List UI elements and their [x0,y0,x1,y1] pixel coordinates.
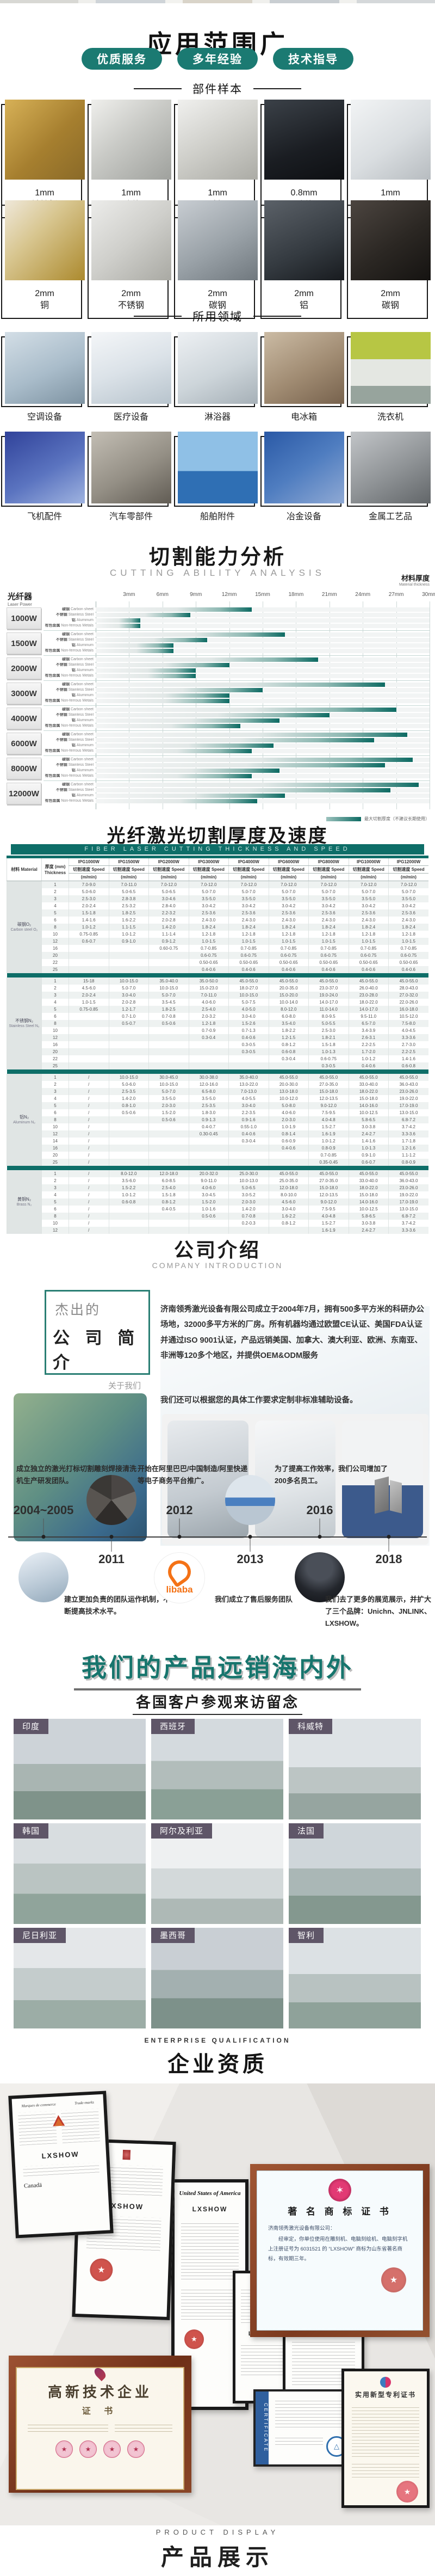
speed-cell: 0.7-0.8 [149,1013,189,1020]
thickness-cell: 6 [42,1109,69,1116]
speed-cell: 1.0-1.5 [69,999,109,1006]
speed-cell: 22.0-26.0 [389,999,429,1006]
speed-cell: 1.2-1.8 [189,1020,229,1027]
thickness-cell: 1 [42,1170,69,1177]
speed-cell: 5.0-6.5 [229,1184,269,1191]
badge-row: 优质服务多年经验技术指导 [0,48,435,70]
speed-table-row: 160.60-0.750.7-0.850.7-0.850.7-0.850.7-0… [7,945,429,952]
speed-cell: 1.2-1.8 [389,931,429,938]
company-timeline: 成立独立的激光打标切割雕刻焊接清洗机生产研发团队。2004~2005建立更加负责… [0,1448,435,1660]
speed-cell: 1.0-1.3 [349,1145,389,1152]
bar-material-label: 碳钢 Carbon sheet [42,733,94,737]
speed-cell: 2.2-2.5 [389,1048,429,1055]
speed-cell: 2.4-3.0 [269,917,309,924]
speed-cell: 7.5-9.5 [309,1109,349,1116]
speed-cell: 23.0-26.0 [389,1184,429,1191]
bar-fill [96,688,263,692]
speed-cell: 1.6-1.9 [309,1227,349,1234]
speed-cell [149,1027,189,1034]
speed-cell: 19.0-24.0 [309,992,349,999]
sample-thickness: 1mm [178,187,258,199]
speed-cell: 10.0-15.0 [109,977,149,985]
pink-seal: ★ [55,2440,73,2458]
speed-cell [109,1159,149,1166]
thickness-cell: 1 [42,881,69,889]
speed-cell: 1.8-2.4 [309,924,349,931]
speed-cell: 27.0-32.0 [389,992,429,999]
speed-table-row: 32.0-2.43.0-4.05.0-7.07.0-11.010.0-15.01… [7,992,429,999]
speed-table-row: 51.5-1.81.8-2.52.2-3.22.5-3.62.5-3.62.5-… [7,909,429,917]
speed-cell: 2.5-3.6 [349,909,389,917]
speed-cell: 1.5-2.7 [309,1220,349,1227]
speed-cell: 45.0-55.0 [229,977,269,985]
trademark-association-logo: ✶ [328,2179,351,2202]
speed-cell: 0.6-0.7 [69,938,109,945]
sample-item: 2mm碳钢 [351,200,431,312]
timeline-axis [8,1536,427,1538]
table-header-power: IPG1000W [69,857,109,866]
table-header-unit: (m/min) [269,874,309,881]
bar-material-label: 不锈钢 Stainless Steel [42,738,94,742]
speed-cell: 2.0-2.4 [69,902,109,909]
speed-cell: 0.8-0.9 [389,1159,429,1166]
timeline-photo [18,1552,69,1602]
speed-cell: 35.0-50.0 [189,977,229,985]
speed-cell: 1.0-1.2 [69,924,109,931]
speed-cell: 9.0-11.0 [189,1177,229,1184]
speed-table-row: 50.75-0.851.2-1.71.8-2.52.5-4.04.0-5.08.… [7,1006,429,1013]
speed-cell: 4.0-6.0 [269,1109,309,1116]
speed-cell [269,1062,309,1069]
speed-cell: 15.0-23.0 [189,985,229,992]
cert-text-lines [241,2343,289,2375]
speed-cell: / [69,1138,109,1145]
speed-cell: 3.0-4.0 [229,1102,269,1109]
speed-table-row: 220.50-0.650.50-0.650.50-0.650.50-0.650.… [7,959,429,966]
thickness-cell: 25 [42,1159,69,1166]
cert-text-lines [275,2435,323,2447]
profile-box-line2: 公 司 简 介 [53,1324,148,1373]
famous-cert-body1: 济南领秀激光设备有限公司： [268,2224,412,2234]
speed-cell: 0.5-0.6 [189,1213,229,1220]
table-header-power: IPG8000W [309,857,349,866]
laser-power-label: 2000W [7,657,41,679]
sample-item: 2mm铝 [264,200,344,312]
speed-cell: 6.0-8.5 [149,1177,189,1184]
speed-cell [189,1220,229,1227]
speed-cell: 4.0-6.0 [189,999,229,1006]
pink-seal: ★ [79,2440,97,2458]
speed-cell: 1.5-2.0 [149,1109,189,1116]
speed-cell: 1.7-2.0 [349,1048,389,1055]
speed-table-row: 24.5-6.05.0-7.010.0-15.015.0-23.018.0-27… [7,985,429,992]
speed-cell: 0.4-0.5 [149,1206,189,1213]
speed-cell: 3.0-4.2 [189,902,229,909]
speed-cell [109,1048,149,1055]
speed-cell: 2.2-2.5 [349,1041,389,1048]
bar-material-label: 有色金属 Non-ferrous Metals [42,674,94,678]
field-photo [178,332,258,404]
speed-table-row: 200.3-0.50.6-0.81.0-1.31.7-2.02.2-2.5 [7,1048,429,1055]
thickness-cell: 4 [42,1191,69,1198]
speed-cell: 0.55-1.0 [229,1123,269,1130]
speed-cell: / [69,1198,109,1206]
bar-material-label: 不锈钢 Stainless Steel [42,788,94,792]
speed-cell: 1.6-2.2 [109,917,149,924]
laser-power-label: 8000W [7,758,41,779]
speed-cell: 0.6-0.7 [349,1159,389,1166]
speed-cell [69,1027,109,1034]
speed-cell: / [69,1109,109,1116]
speed-cell: 0.2-0.3 [229,1220,269,1227]
speed-cell: 18.0-22.0 [349,999,389,1006]
speed-table-row: 200.6-0.750.6-0.750.6-0.750.6-0.750.6-0.… [7,952,429,959]
speed-cell: 3.5-5.0 [349,895,389,902]
speed-cell: 0.6-0.75 [189,952,229,959]
bar-material-label: 碳钢 Carbon sheet [42,607,94,612]
speed-cell: 0.6-0.8 [269,1048,309,1055]
speed-cell: / [69,1159,109,1166]
badge: 多年经验 [177,48,258,70]
bar-fill [96,794,285,798]
field-caption: 洗衣机 [351,411,431,423]
axis-tick-label: 30mm [422,592,435,598]
sample-thickness: 2mm [5,288,85,300]
thickness-cell: 14 [42,1138,69,1145]
bar-material-label: 铝 Aluminum [42,668,94,673]
speed-cell: 2.5-3.0 [309,1027,349,1034]
speed-cell: 15.0-18.0 [349,1191,389,1198]
speed-cell: 5.0-6.0 [69,888,109,895]
hightech-enterprise-certificate: 高新技术企业 证 书 ★★★★ [9,2356,191,2493]
speed-cell: 3.5-5.0 [389,895,429,902]
thickness-cell: 4 [42,1095,69,1102]
speed-cell: 1.4-1.6 [349,1138,389,1145]
speed-cell: 10.0-15.0 [149,1081,189,1088]
speed-cell [109,1145,149,1152]
laser-power-label: 12000W [7,783,41,804]
speed-cell [189,1227,229,1234]
sample-item: 1mm镀锌板 [5,100,85,212]
speed-cell: 0.3-0.4 [189,1034,229,1041]
flame-emblem [92,2366,108,2381]
field-photo [351,432,431,503]
thickness-cell: 8 [42,924,69,931]
speed-cell: 20.0-32.0 [189,1170,229,1177]
thickness-cell: 6 [42,917,69,924]
speed-cell: 18.0-22.0 [349,1088,389,1095]
visit-country-tag: 法国 [289,1823,324,1839]
speed-cell: 12.0-16.0 [189,1081,229,1088]
speed-cell [189,1152,229,1159]
speed-cell: 1.4-2.0 [109,1095,149,1102]
speed-cell: 2.4-2.7 [349,1227,389,1234]
speed-cell: 45.0-55.0 [269,1074,309,1081]
thickness-cell: 25 [42,966,69,973]
sample-thickness: 1mm [5,187,85,199]
speed-cell: 7.0-12.0 [309,881,349,889]
table-divider [7,1166,429,1170]
speed-cell: 3.4-3.9 [349,1027,389,1034]
speed-cell: / [69,1074,109,1081]
speed-cell: 3.0-4.2 [309,902,349,909]
speed-cell: 1.8-2.2 [269,1027,309,1034]
speed-cell: 5.0-8.0 [269,1102,309,1109]
speed-cell: 0.5-0.6 [149,1116,189,1123]
speed-cell: 4.0-5.0 [229,1006,269,1013]
pink-seal-row: ★★★★ [16,2440,184,2458]
thickness-cell: 8 [42,1213,69,1220]
visit-photo: 韩国 [14,1823,146,1924]
fields-heading-label: 所用领域 [192,308,243,324]
speed-cell: 0.7-1.3 [229,1027,269,1034]
speed-cell: 25.0-35.0 [269,1177,309,1184]
sample-thickness: 2mm [264,288,344,300]
speed-cell: 0.4-0.6 [389,966,429,973]
speed-cell: 7.0-12.0 [149,881,189,889]
speed-cell [269,1152,309,1159]
speed-cell: 12.0-18.0 [269,1184,309,1191]
speed-cell: 3.7-4.2 [389,1123,429,1130]
speed-table-row: 10/0.2-0.30.8-1.21.5-2.73.0-3.83.7-4.2 [7,1220,429,1227]
bar-track [96,624,430,628]
field-caption: 船舶附件 [178,511,258,523]
speed-table-row: 81.0-1.21.1-1.51.4-2.01.8-2.41.8-2.41.8-… [7,924,429,931]
cert-text-lines [28,2422,108,2434]
visit-photo: 法国 [289,1823,421,1924]
speed-cell: 5.0-7.0 [269,888,309,895]
speed-cell: 10.0-15.0 [149,985,189,992]
bar-fill [96,769,279,773]
speed-cell [149,1145,189,1152]
speed-cell [189,1159,229,1166]
speed-cell: 2.4-3.0 [229,917,269,924]
speed-cell [109,1130,149,1138]
thickness-cell: 3 [42,1184,69,1191]
speed-cell: 45.0-55.0 [389,1074,429,1081]
speed-cell [69,1034,109,1041]
speed-cell: 1.1-1.5 [109,924,149,931]
speed-cell [69,959,109,966]
speed-cell: 0.4-0.6 [229,1130,269,1138]
speed-cell: 0.6-0.8 [389,1062,429,1069]
bar-material-label: 有色金属 Non-ferrous Metals [42,724,94,728]
laser-power-label: 3000W [7,683,41,704]
speed-table: 材料 Material厚度 (mm) ThicknessIPG1000WIPG1… [7,856,428,1234]
speed-cell: 3.5-5.0 [149,1095,189,1102]
visit-photo: 西班牙 [151,1719,283,1819]
speed-cell: 0.7-0.85 [309,945,349,952]
speed-cell: 6.5-7.0 [349,1020,389,1027]
speed-cell: 0.6-0.75 [309,1055,349,1062]
famous-cert-body2: 经审定，你单位使用在雕刻机、电脑刻绘机、电脑刻字机上注册证号为 6031521 … [268,2235,412,2264]
speed-cell [69,1020,109,1027]
sample-photo [5,100,85,180]
speed-table-row: 2/5.0-6.010.0-15.012.0-16.013.0-22.020.0… [7,1081,429,1088]
speed-cell: 3.0-3.8 [349,1220,389,1227]
bar-fill [96,724,240,728]
thickness-cell: 8 [42,1116,69,1123]
speed-cell: 2.5-3.6 [269,909,309,917]
laser-power-en: Laser Power [8,602,32,607]
table-header-speed: 切割速度 Speed [389,866,429,874]
sample-item: 1mm不锈钢 [351,100,431,212]
bar-material-label: 铝 Aluminum [42,643,94,648]
speed-cell: 4.0-6.0 [189,1184,229,1191]
customer-visit-grid: 印度西班牙科威特韩国阿尔及利亚法国尼日利亚墨西哥智利 [14,1719,421,2028]
thickness-cell: 4 [42,999,69,1006]
speed-cell: 1.8-2.4 [349,924,389,931]
company-paragraph-2: 我们还可以根据您的具体工作要求定制非标准辅助设备。 [160,1393,428,1409]
thickness-cell: 20 [42,1048,69,1055]
bar-material-label: 有色金属 Non-ferrous Metals [42,649,94,653]
speed-cell: 0.7-0.85 [389,945,429,952]
speed-cell [149,1227,189,1234]
speed-cell: 9.5-11.0 [349,1013,389,1020]
speed-table-row: 220.3-0.40.6-0.751.0-1.21.4-1.6 [7,1055,429,1062]
axis-tick-label: 21mm [322,592,337,598]
speed-table-row: 12/0.30-0.450.4-0.60.8-1.41.6-1.92.4-2.7… [7,1130,429,1138]
thickness-cell: 20 [42,952,69,959]
sample-photo [351,100,431,180]
speed-table-row: 60.7-1.00.7-0.82.0-3.23.0-4.06.0-8.08.0-… [7,1013,429,1020]
timeline-year: 2016 [307,1503,333,1517]
canada-cert-col2: Trade-marks [74,2100,94,2106]
bar-fill [96,624,140,628]
speed-cell [109,945,149,952]
speed-cell: 7.5-9.5 [309,1206,349,1213]
bar-fill [96,663,229,667]
speed-cell: 1.0-1.3 [309,1048,349,1055]
speed-cell: 17.0-19.0 [389,1198,429,1206]
speed-cell: / [69,1213,109,1220]
speed-cell: 6.0-8.0 [269,1013,309,1020]
speed-cell: 1.2-1.7 [109,1006,149,1013]
speed-cell: / [69,1081,109,1088]
bar-material-label: 有色金属 Non-ferrous Metals [42,774,94,778]
speed-cell: 1.2-1.6 [389,1145,429,1152]
famous-cert-title: 著 名 商 标 证 书 [257,2204,422,2217]
speed-cell: 0.7-0.9 [189,1027,229,1034]
speed-cell: 1.0-1.5 [309,938,349,945]
cert-text-lines [18,2111,57,2145]
thickness-cell: 12 [42,1227,69,1234]
speed-cell: 5.0-6.5 [149,888,189,895]
bar-material-label: 有色金属 Non-ferrous Metals [42,699,94,703]
material-cell: 碳钢O₂Carbon steel O₂ [7,881,42,974]
speed-cell: 35.0-40.0 [229,1074,269,1081]
field-item: 飞机配件 [5,432,85,523]
speed-cell: 0.35-0.45 [309,1159,349,1166]
timeline-connector [320,1518,320,1536]
speed-cell: 0.6-0.75 [309,952,349,959]
speed-cell [149,1041,189,1048]
speed-cell [189,1055,229,1062]
alibaba-wordmark: libaba [166,1584,192,1595]
speed-cell: 0.50-0.65 [229,959,269,966]
speed-cell: 7.0-11.0 [189,992,229,999]
cert-text-lines [115,2422,172,2434]
speed-cell: 2.2-3.5 [229,1109,269,1116]
speed-cell: 0.6-0.75 [349,952,389,959]
cert-text-lines [61,2108,100,2143]
speed-cell: 0.3-0.5 [229,1041,269,1048]
maple-leaf-icon [52,2115,65,2126]
speed-cell: 0.7-0.85 [189,945,229,952]
speed-cell [149,1062,189,1069]
timeline-year: 2004~2005 [14,1503,74,1517]
speed-cell: 1.8-2.4 [269,924,309,931]
speed-cell: 1.4-1.6 [69,917,109,924]
speed-cell: 0.6-0.75 [389,952,429,959]
thickness-cell: 10 [42,1027,69,1034]
speed-cell: 5.8-6.5 [349,1116,389,1123]
speed-cell: 33.0-40.0 [349,1177,389,1184]
speed-cell: 2.6-3.1 [349,1034,389,1041]
sample-item: 2mm不锈钢 [91,200,171,312]
speed-cell: 1.8-3.0 [189,1109,229,1116]
speed-cell: 3.0-4.0 [269,1206,309,1213]
speed-cell [149,959,189,966]
speed-table-row: 25.0-6.05.0-6.55.0-6.55.0-7.05.0-7.05.0-… [7,888,429,895]
speed-table-row: 250.4-0.60.4-0.60.4-0.60.4-0.60.4-0.60.4… [7,966,429,973]
sample-photo [91,200,171,280]
speed-cell: / [69,1170,109,1177]
field-item: 医疗设备 [91,332,171,423]
speed-cell: 0.8-1.4 [269,1130,309,1138]
speed-cell: 0.5-0.6 [149,1020,189,1027]
speed-cell: 3.0-4.2 [269,902,309,909]
speed-cell [149,1138,189,1145]
timeline-caption: 建立更加负责的团队运作机制，不断提高技术水平。 [64,1594,173,1618]
bar-fill [96,733,407,737]
alibaba-logo: libaba [154,1552,205,1603]
speed-cell [109,1206,149,1213]
speed-cell: 0.9-1.2 [149,938,189,945]
thickness-cell: 6 [42,1013,69,1020]
speed-cell: / [69,1145,109,1152]
bar-fill [96,708,396,712]
bar-material-label: 不锈钢 Stainless Steel [42,613,94,617]
speed-cell: 14.0-17.0 [309,999,349,1006]
bar-material-label: 铝 Aluminum [42,743,94,748]
speed-cell: 0.4-0.6 [189,966,229,973]
speed-cell [149,1213,189,1220]
field-item: 冶金设备 [264,432,344,523]
speed-cell: 14.0-17.0 [349,1006,389,1013]
pink-seal: ★ [103,2440,121,2458]
profile-box-line3: 关于我们 [46,1380,141,1391]
speed-cell: 2.5-3.6 [229,909,269,917]
speed-cell: 1.2-1.8 [229,931,269,938]
sample-item: 2mm铜 [5,200,85,312]
speed-cell [69,1062,109,1069]
sample-item: 2mm碳钢 [178,200,258,312]
speed-table-row: 4/1.0-1.21.5-1.83.0-4.53.0-5.28.0-10.012… [7,1191,429,1198]
speed-cell: 3.5-4.5 [149,999,189,1006]
bar-material-label: 有色金属 Non-ferrous Metals [42,749,94,753]
bar-fill [96,713,330,717]
speed-cell [149,966,189,973]
speed-cell: 0.7-0.85 [229,945,269,952]
sample-item: 1mm碳钢 [178,100,258,212]
speed-cell: 7.0-12.0 [389,881,429,889]
speed-cell: 2.4-3.0 [309,917,349,924]
speed-table-row: 3/1.5-2.22.5-4.04.0-6.05.0-6.512.0-18.01… [7,1184,429,1191]
speed-cell: 2.5-3.6 [189,909,229,917]
group-separator [43,630,430,631]
material-thickness-zh: 材料厚度 [399,573,430,583]
